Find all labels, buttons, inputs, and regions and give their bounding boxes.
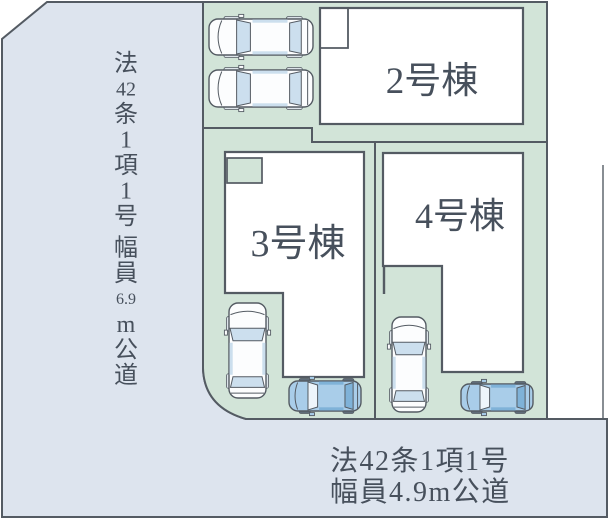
car-lot4-blue [461,379,533,415]
left-road-label-char: 項 [114,153,138,179]
bottom-road-label: 法42条1項1号 幅員4.9m公道 [330,445,511,508]
building-4-label: 4号棟 [415,196,505,236]
left-road-label-char: 1 [120,179,132,205]
left-road-label-char: 42 [116,79,136,101]
car-lot3-blue [289,376,361,415]
bottom-road-label-line1: 法42条1項1号 [330,445,510,477]
bottom-road-label-line2: 幅員4.9m公道 [330,476,511,508]
building-3-porch-notch [227,158,262,183]
left-road-label-char: 1 [120,128,132,154]
car-parking-top-2 [209,65,313,111]
left-road-label-char: 道 [114,362,138,389]
left-road-label-char: m [117,312,136,338]
left-road-label-char: 号 [114,204,138,230]
car-lot3-white [224,303,270,398]
left-road-label-char: 公 [114,338,138,364]
building-3-label: 3号棟 [250,223,345,265]
left-road-label-char: 幅 [114,235,138,262]
left-road-label-char: 条 [114,101,138,128]
left-road-label-char: 法 [114,50,138,77]
car-parking-top-1 [209,14,313,59]
left-road-label-char: 員 [114,261,138,287]
left-road-label-char: 6.9 [116,291,136,308]
site-plan: 2号棟 3号棟 4号棟 法42条1項1号幅員6.9m公道 法42条1項1号 幅員… [0,0,609,523]
building-2: 2号棟 [320,8,523,124]
building-2-label: 2号棟 [386,61,479,102]
car-lot4-white [387,317,430,412]
